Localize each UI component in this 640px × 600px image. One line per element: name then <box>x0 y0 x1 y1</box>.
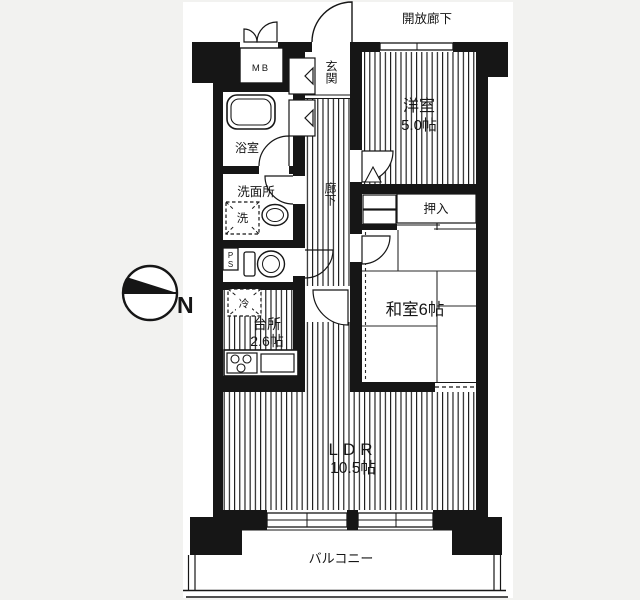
label-closet: 押入 <box>423 202 449 216</box>
label-fridge: 冷 <box>239 297 250 310</box>
floor-plan-drawing: 開放廊下 玄関 MB 洋室 5.0帖 浴室 洗面所 洗 PS 廊下 押入 和室6… <box>0 0 640 600</box>
label-kitchen-size: 2.6帖 <box>250 333 283 349</box>
label-bathroom: 浴室 <box>235 140 259 155</box>
label-corridor: 廊下 <box>323 181 337 206</box>
label-entrance: 玄関 <box>324 59 338 84</box>
compass-icon <box>123 266 177 320</box>
label-ldr-name: LDR <box>328 440 377 459</box>
label-western-room-name: 洋室 <box>403 97 435 115</box>
floor-plan-page: 開放廊下 玄関 MB 洋室 5.0帖 浴室 洗面所 洗 PS 廊下 押入 和室6… <box>0 0 640 600</box>
label-japanese-room: 和室6帖 <box>386 300 445 319</box>
label-open-corridor: 開放廊下 <box>402 11 452 26</box>
toilet-icon <box>244 252 255 276</box>
label-ldr-size: 10.5帖 <box>330 459 376 477</box>
kitchen-sink <box>261 354 294 372</box>
label-kitchen-name: 台所 <box>253 316 281 332</box>
label-washroom: 洗面所 <box>237 185 275 199</box>
label-balcony: バルコニー <box>309 551 374 566</box>
label-meter-box: MB <box>252 63 270 74</box>
label-compass-north: N <box>177 292 194 318</box>
label-western-room-size: 5.0帖 <box>401 117 437 134</box>
storage-boxes <box>363 195 396 224</box>
label-pipe-space: PS <box>226 251 235 269</box>
label-washer: 洗 <box>237 212 249 225</box>
sink-icon <box>262 205 288 226</box>
stove-icon <box>227 353 257 373</box>
